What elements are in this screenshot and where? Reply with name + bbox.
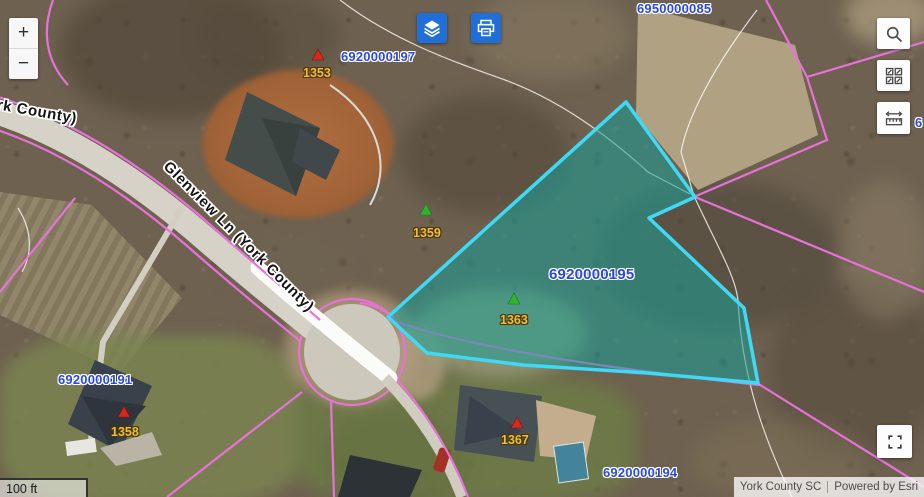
map-vector-overlay xyxy=(0,0,924,497)
house-bottom-partial-roof xyxy=(338,455,422,497)
parcel-label-6920000195: 6920000195 xyxy=(549,266,634,283)
parcel-label-clipped-right-edge: 6 xyxy=(915,115,922,130)
scale-bar-label: 100 ft xyxy=(6,482,37,496)
attribution-divider xyxy=(827,481,828,493)
print-button[interactable] xyxy=(471,13,501,43)
parcel-label-6920000197: 6920000197 xyxy=(341,49,415,64)
powered-by-esri-link[interactable]: Powered by Esri xyxy=(834,481,918,493)
shed xyxy=(65,438,97,456)
measure-button[interactable] xyxy=(877,102,910,134)
fullscreen-icon xyxy=(885,432,905,452)
zoom-in-button[interactable]: + xyxy=(9,18,38,48)
search-icon xyxy=(884,24,904,44)
print-icon xyxy=(476,18,496,38)
address-label-1353: 1353 xyxy=(303,66,331,80)
search-button[interactable] xyxy=(877,18,910,49)
silt-fence xyxy=(330,85,381,205)
address-label-1358: 1358 xyxy=(111,425,139,439)
parcel-label-6920000194: 6920000194 xyxy=(603,465,677,480)
parcel-label-6950000085: 6950000085 xyxy=(637,1,711,16)
marker-1359-green-triangle[interactable] xyxy=(420,204,432,215)
layers-button[interactable] xyxy=(417,13,447,43)
measure-icon xyxy=(884,108,904,128)
scale-bar: 100 ft xyxy=(0,478,88,497)
map-canvas[interactable]: 6950000085 6920000197 6920000195 6920000… xyxy=(0,0,924,497)
parcel-label-6920000191: 6920000191 xyxy=(58,372,132,387)
attribution-bar: York County SC Powered by Esri xyxy=(734,477,924,497)
swimming-pool xyxy=(554,442,589,483)
fullscreen-button[interactable] xyxy=(877,425,912,458)
zoom-out-button[interactable]: − xyxy=(9,48,38,79)
address-label-1363: 1363 xyxy=(500,313,528,327)
extent-grid-icon xyxy=(884,66,904,86)
attribution-source: York County SC xyxy=(740,481,821,493)
extent-grid-button[interactable] xyxy=(877,60,910,91)
address-label-1367: 1367 xyxy=(501,433,529,447)
marker-1353-red-triangle[interactable] xyxy=(312,49,324,60)
zoom-control: + − xyxy=(9,18,38,79)
address-label-1359: 1359 xyxy=(413,226,441,240)
layers-icon xyxy=(422,18,442,38)
selected-parcel-polygon[interactable] xyxy=(388,102,758,383)
